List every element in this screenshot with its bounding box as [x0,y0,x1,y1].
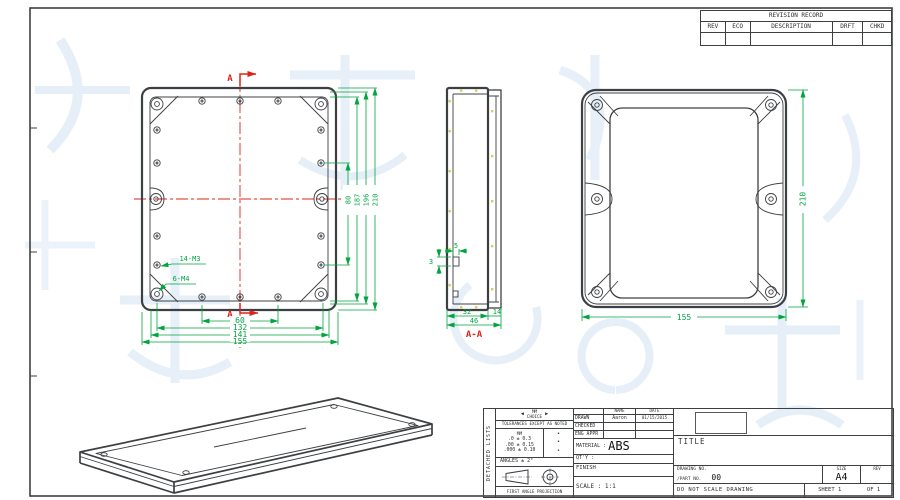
projection-symbol [496,467,573,487]
dim-32: 32 [463,308,471,316]
rev-label: REV [873,466,880,471]
units-secondary: CHOICE [527,415,542,420]
approval-row-eng-appr: ENG APPR [574,431,673,439]
tolerance-flag-2: • [557,440,560,446]
scale-value: 1:1 [605,484,616,491]
size-value: A4 [835,472,847,484]
dim-14: 14 [493,308,501,316]
date-header: DATE [636,409,673,414]
angles-note: ANGLES ± 2° [496,458,573,467]
tolerance-note: TOLERANCES EXCEPT AS NOTED [496,421,573,429]
tolerance-flag-1: • [557,432,560,438]
label-6-M4: 6-M4 [173,275,190,283]
back-corner-screws [592,100,777,298]
section-title: A-A [466,330,483,340]
part-no-label: /PART NO. [677,477,701,482]
checked-date [636,423,673,430]
logo-box [695,412,747,434]
dim-210-front: 210 [372,194,380,207]
drawn-date: 01/15/2015 [636,415,673,422]
finish-label: FINISH [576,465,596,471]
title-block: DETACHED LISTS ◀ MM CHOICE ▶ TOLERANCES … [483,408,894,498]
dim-210-back: 210 [799,192,808,207]
back-mid-bosses [585,183,783,215]
drawn-name: Aaron [604,415,636,422]
col-eco: ECO [726,22,751,33]
sheet-label: SHEET 1 [818,487,841,493]
title-column: TITLE DRAWING NO. /PART NO. 00 SIZE A4 R… [674,409,893,497]
scale-label: SCALE : [576,484,601,491]
back-view: 210 155 [582,90,808,322]
tolerance-row-3: .000 ± 0.10 [504,448,536,454]
material-label: MATERIAL : [576,444,606,450]
tolerance-table: MM .0 ± 0.3 .00 ± 0.15 .000 ± 0.10 • • • [496,429,573,458]
name-header: NAME [604,409,636,414]
logo-area [674,409,893,435]
part-no-value: 00 [711,473,721,482]
do-not-scale-note: DO NOT SCALE DRAWING [674,484,804,497]
sheet-info: SHEET 1 OF 1 [804,484,893,497]
dim-46: 46 [470,317,478,325]
checked-name [604,423,636,430]
projection-caption: FIRST ANGLE PROJECTION [496,487,573,497]
section-label-top: A [227,74,233,84]
qty-label: QT'Y : [576,456,594,462]
col-chkd: CHKD [863,22,891,33]
label-14-M3: 14-M3 [179,255,200,263]
bottom-row: DO NOT SCALE DRAWING SHEET 1 OF 1 [674,483,893,497]
rev-box: REV [860,466,893,483]
size-box: SIZE A4 [822,466,860,483]
arrow-left-icon: ◀ [521,412,524,418]
dim-196: 196 [363,194,371,207]
side-strip-label: DETACHED LISTS [487,425,493,481]
section-view: 5 3 32 14 46 A-A [429,88,501,340]
revision-table: REVISION RECORD REV ECO DESCRIPTION DRFT… [700,10,892,46]
tolerance-column: ◀ MM CHOICE ▶ TOLERANCES EXCEPT AS NOTED… [496,409,574,497]
eng-appr-date [636,431,673,438]
material-value: ABS [608,440,630,454]
arrow-right-icon: ▶ [545,412,548,418]
col-rev: REV [701,22,726,33]
first-angle-projection-icon [500,468,570,486]
title-block-side-strip: DETACHED LISTS [484,409,496,497]
title-label: TITLE [678,437,706,446]
col-drft: DRFT [833,22,864,33]
scale-row: SCALE : 1:1 [574,477,673,497]
eng-appr-name [604,431,636,438]
drawn-label: DRAWN [574,415,604,422]
col-description: DESCRIPTION [751,22,833,33]
approval-column: NAME DATE DRAWN Aaron 01/15/2015 CHECKED… [574,409,674,497]
units-row: ◀ MM CHOICE ▶ [496,409,573,421]
approval-row-checked: CHECKED [574,423,673,431]
tolerance-flag-3: • [557,449,560,455]
dim-155: 155 [233,337,248,346]
drawing-no-label: DRAWING NO. [677,467,822,472]
dim-5: 5 [454,242,458,250]
drawing-sheet: A A 60 132 141 155 80 187 [0,0,900,500]
checked-label: CHECKED [574,423,604,430]
drawing-number-row: DRAWING NO. /PART NO. 00 SIZE A4 REV [674,465,893,483]
dim-3: 3 [429,258,433,266]
material-row: MATERIAL : ABS [574,439,673,455]
sheet-of: OF 1 [867,487,880,493]
thread-callouts: 14-M3 6-M4 [159,255,206,291]
approval-row-drawn: DRAWN Aaron 01/15/2015 [574,415,673,423]
dim-155-back: 155 [677,313,692,322]
hatch-specks [449,90,494,309]
title-area: TITLE [674,435,893,465]
qty-row: QT'Y : [574,455,673,464]
dim-80: 80 [345,196,353,204]
finish-row: FINISH [574,464,673,477]
dim-187: 187 [354,194,362,207]
revision-empty-row [701,33,891,45]
eng-appr-label: ENG APPR [574,431,604,438]
revision-table-header: REV ECO DESCRIPTION DRFT CHKD [701,22,891,33]
revision-table-title: REVISION RECORD [701,11,891,22]
section-marker-top: A [227,74,256,86]
isometric-view [80,398,432,493]
